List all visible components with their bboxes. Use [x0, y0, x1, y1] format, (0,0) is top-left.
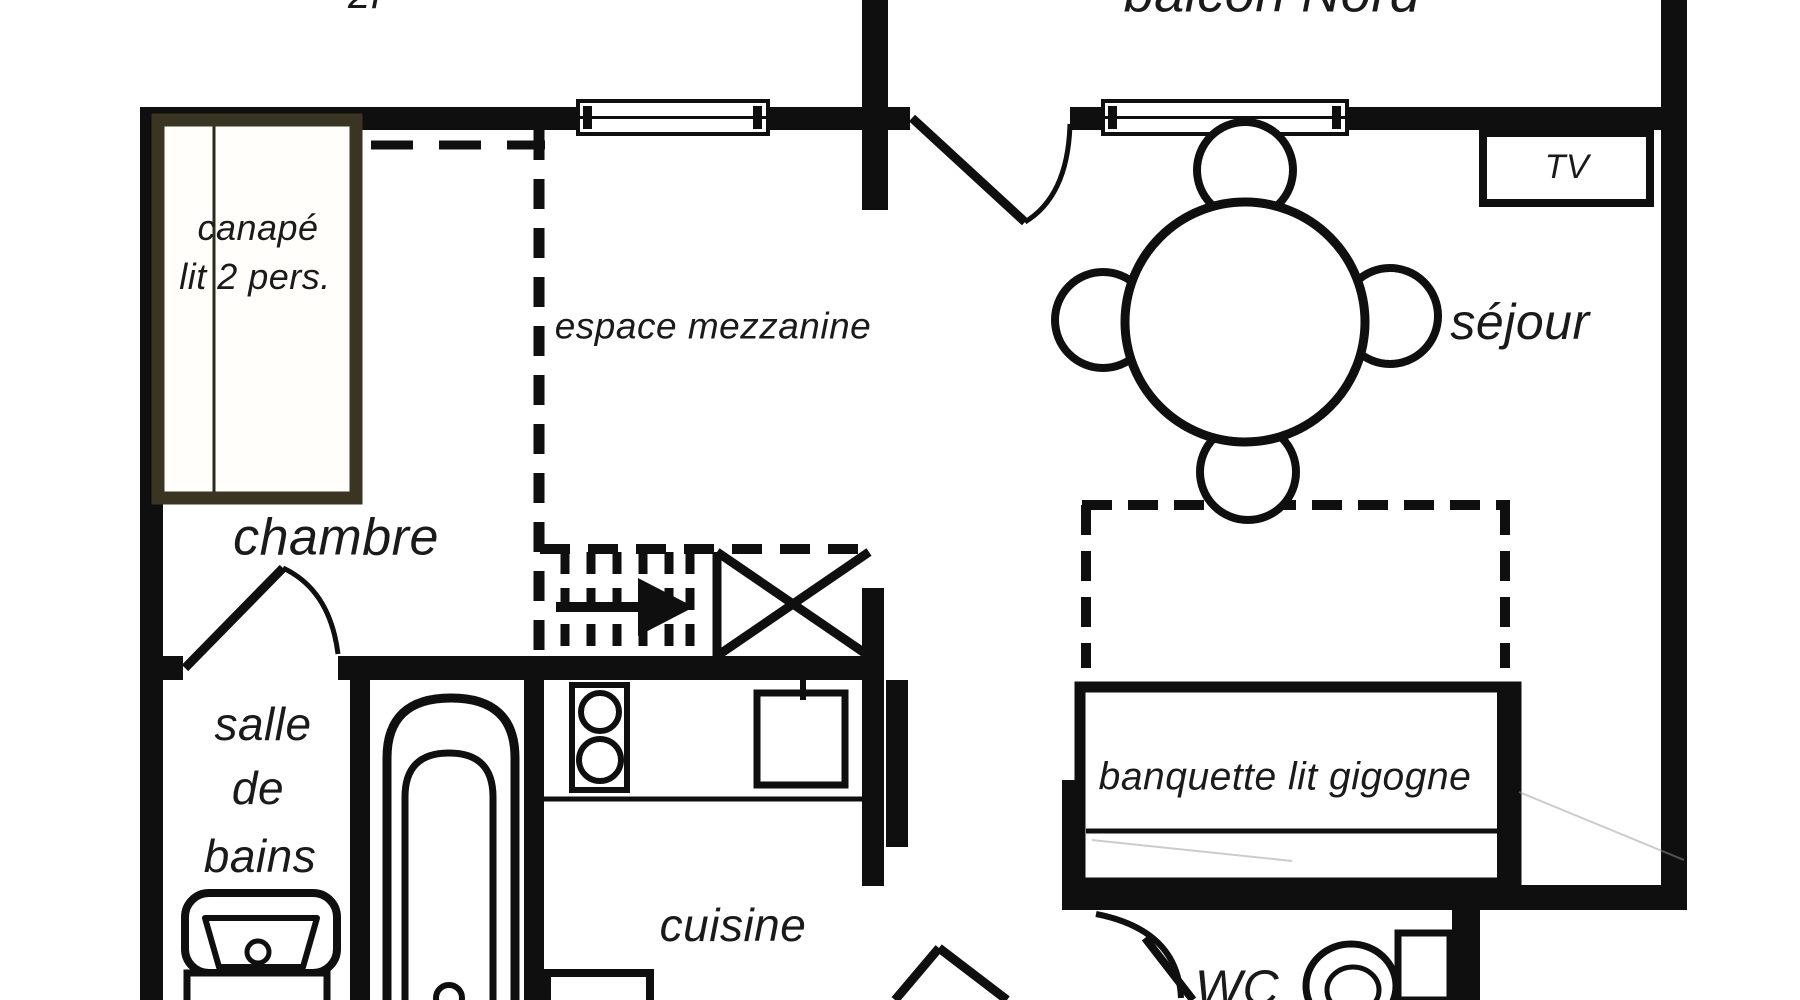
wall-bath-tub-divider [350, 677, 370, 1000]
wall-top-mid [768, 107, 910, 130]
door-bedroom [185, 568, 338, 668]
label-bathroom-2: de [232, 764, 284, 812]
burner [581, 693, 619, 731]
kitchen-unit-bottom [547, 973, 650, 1000]
wall-top-door-stub [1070, 107, 1103, 130]
wall-bottom-right [1062, 885, 1687, 910]
toilet [1306, 933, 1450, 1000]
label-bathroom-3: bains [204, 832, 316, 880]
window-north-left [578, 101, 768, 134]
label-living-room: séjour [1450, 296, 1589, 349]
door-entry [895, 948, 1007, 1000]
wall-balcony-divider [862, 0, 888, 210]
wall-bedroom-stub [140, 656, 183, 680]
burner [579, 739, 621, 781]
wall-top-right [1347, 107, 1687, 130]
door-balcony-north [912, 118, 1070, 222]
wall-tub-kitchen-divider [524, 677, 544, 1000]
label-mezzanine: espace mezzanine [555, 308, 872, 347]
label-balcony-north: balcon Nord [1124, 0, 1421, 22]
bathroom-sink [185, 893, 337, 1000]
crease-line [1519, 792, 1684, 860]
table-top [1125, 202, 1365, 442]
trundle-bed-dashed-outline [1082, 505, 1510, 668]
label-bench-bed: banquette lit gigogne [1099, 758, 1472, 799]
label-wc: WC [1195, 962, 1279, 1000]
label-bedroom: chambre [233, 511, 439, 566]
sofa-bed [158, 120, 356, 498]
label-tv: TV [1545, 150, 1589, 186]
label-bathroom-1: salle [214, 700, 311, 748]
wall-right [1661, 0, 1687, 910]
floor-plan: 2P balcon Nord canapé lit 2 pers. espace… [0, 0, 1800, 1000]
shaft-x-box [717, 552, 869, 656]
door-wc [1096, 914, 1193, 1000]
wall-kitchen-right-b [886, 680, 908, 847]
label-unit-partial: 2P [348, 0, 398, 16]
stove [572, 685, 627, 790]
toilet-bowl [1306, 944, 1396, 1000]
toilet-cistern [1398, 933, 1450, 1000]
label-sofa-bed-2: lit 2 pers. [179, 258, 331, 296]
bathtub [387, 698, 515, 1000]
label-kitchen: cuisine [660, 901, 807, 949]
wall-kitchen-right-a [862, 588, 884, 886]
sink-pedestal [187, 973, 327, 1000]
bathtub-drain [436, 985, 462, 1000]
wall-bedroom-kitchen [338, 656, 863, 680]
dining-table [1055, 122, 1438, 520]
label-sofa-bed-1: canapé [197, 209, 318, 247]
wall-wc-right [1452, 885, 1480, 1000]
